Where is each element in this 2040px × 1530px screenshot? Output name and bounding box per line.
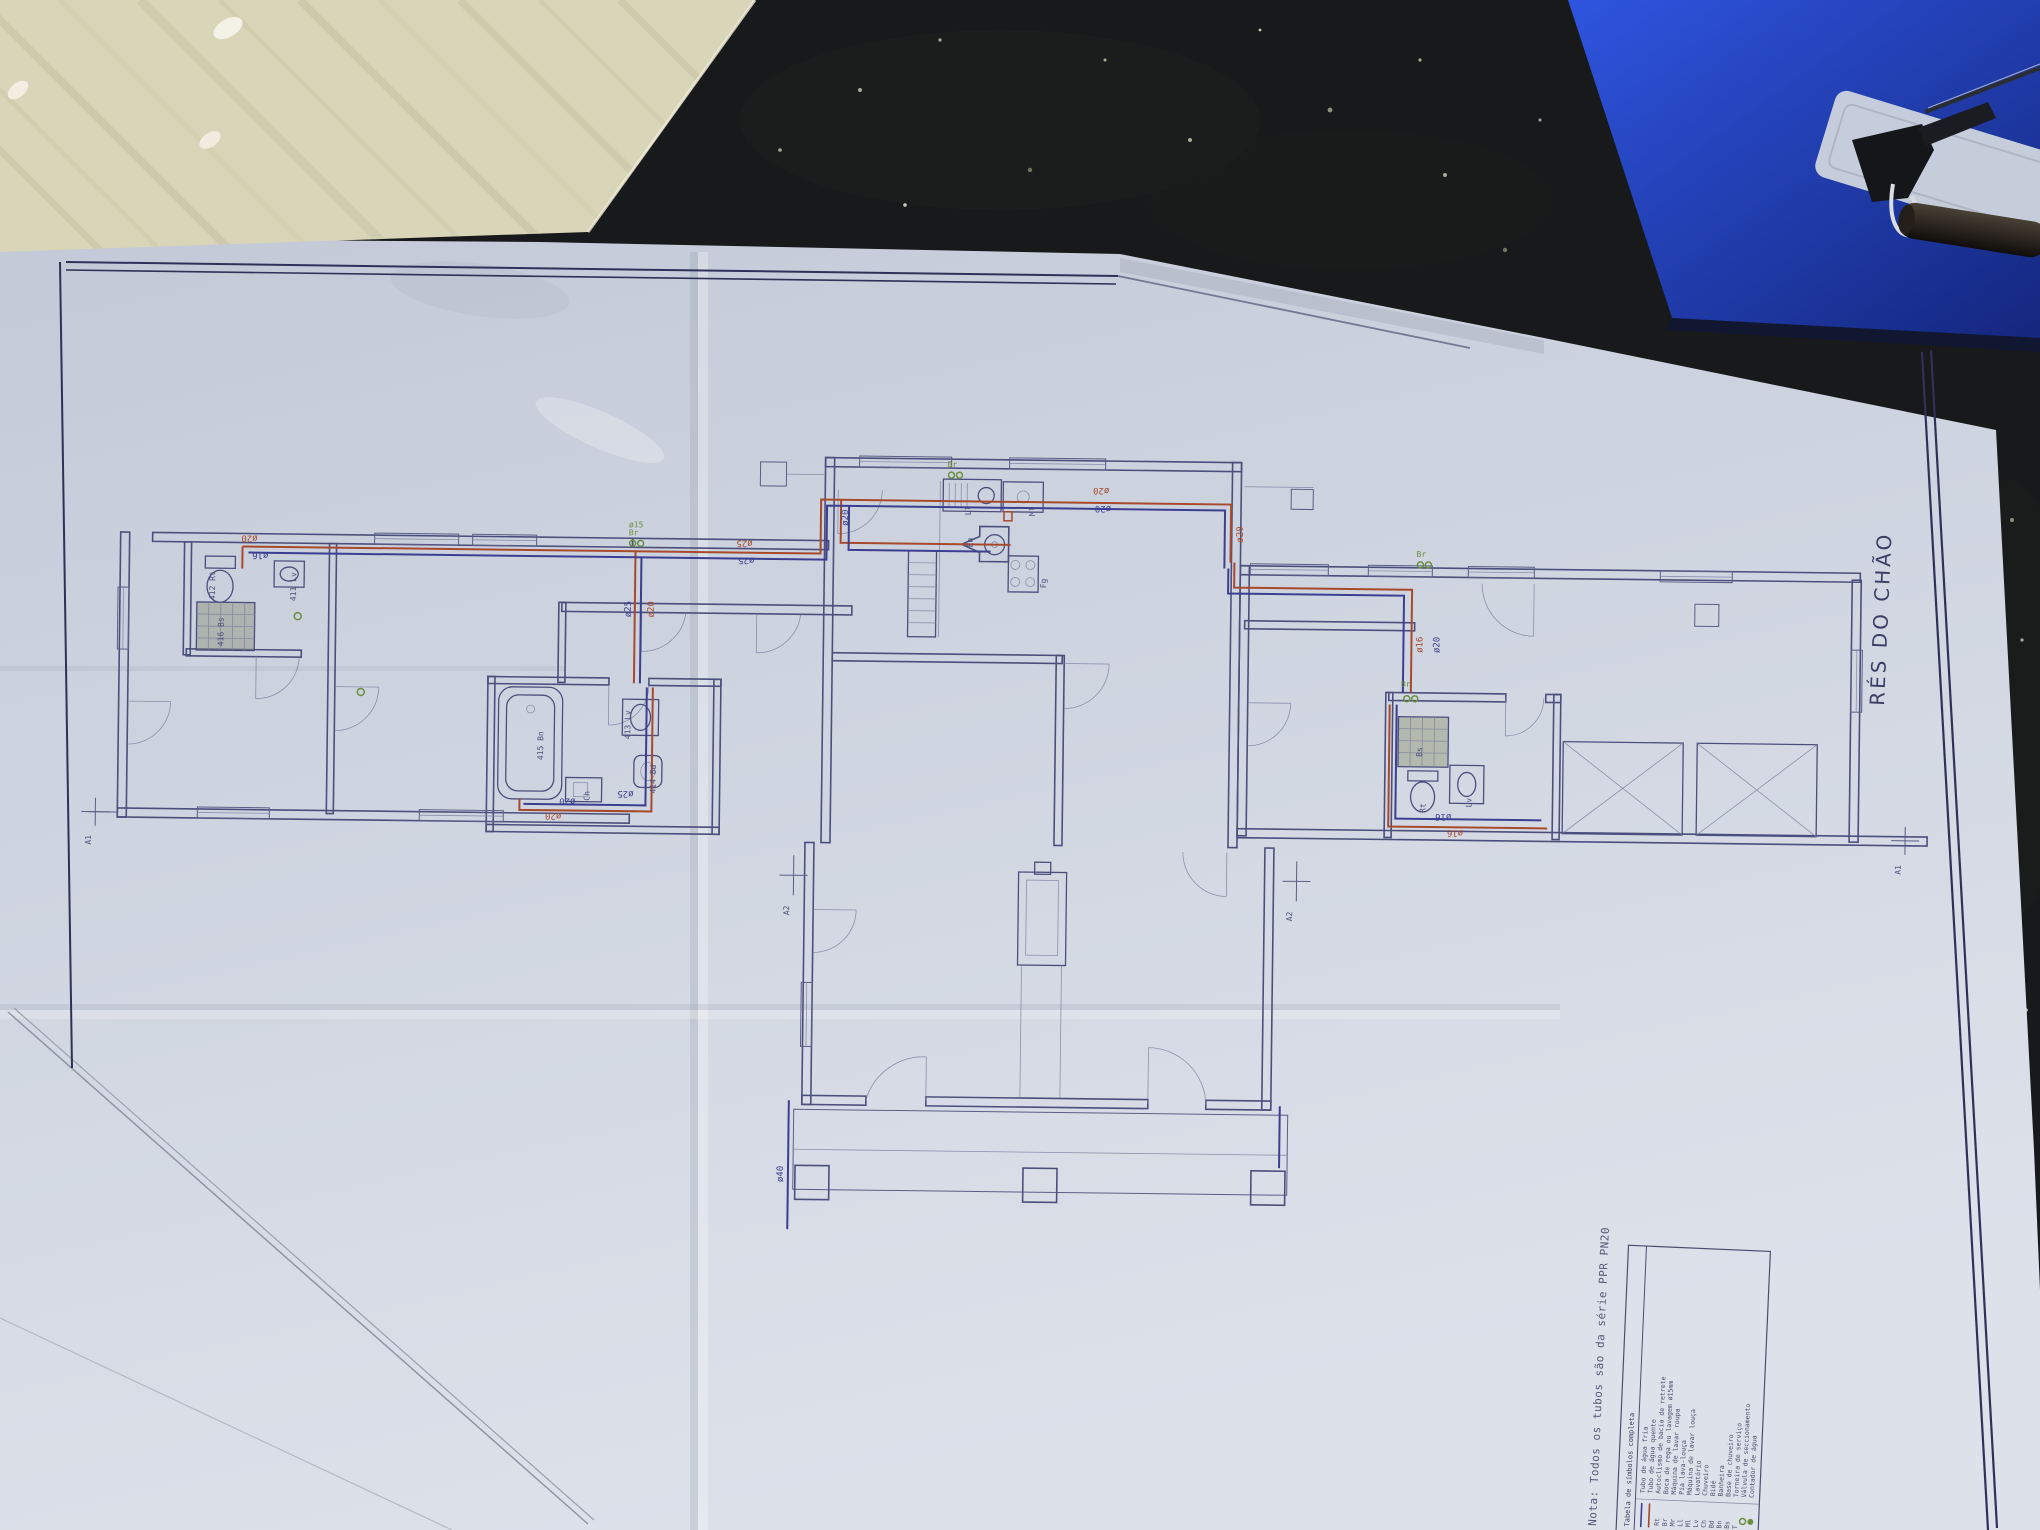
pipe-label-d25: ø25 [617, 788, 633, 798]
pipe-label-d16: ø16 [1435, 811, 1451, 821]
fixture-label-shower: 416 Bs [216, 617, 225, 646]
pipe-label-d20: ø20 [1432, 637, 1442, 653]
fixture-label-cabinet: Ch [582, 791, 591, 801]
fixture-label-toilet: Rt [1418, 803, 1427, 813]
pipe-label-d20: ø20 [241, 532, 257, 542]
pipe-label-d16: ø16 [252, 550, 268, 560]
fixture-label-sink: Lv [1464, 798, 1473, 808]
legend-symbol-hot-line [1649, 1503, 1650, 1527]
section-label: A2 [782, 905, 791, 915]
pipe-label-d20: ø20 [1095, 503, 1111, 513]
shower-icon [196, 602, 255, 651]
fixture-label-sink: 413 Lv [623, 710, 632, 739]
pipe-label-d20: ø20 [1093, 485, 1109, 495]
blueprint-photo: ø16 ø20 ø25 ø25 ø25 ø20 ø20 ø20 ø25 ø20 … [0, 0, 2040, 1530]
pipe-label-d20: ø20 [559, 795, 575, 805]
fixture-label-water-heater: Eq [966, 538, 975, 548]
pipe-label-d25: ø25 [624, 601, 634, 617]
fixture-label-stove: Fg [1039, 578, 1048, 588]
pipe-label-d25: ø25 [738, 555, 754, 565]
pipe-label-d20: ø20 [647, 601, 657, 617]
fixture-label-kitchen-sink: Ll [964, 505, 973, 515]
section-label: A1 [84, 835, 93, 845]
legend-abbr: T [1731, 1525, 1739, 1529]
paper-sheet: ø16 ø20 ø25 ø25 ø25 ø20 ø20 ø20 ø25 ø20 … [0, 238, 2040, 1530]
valve-label-br: Br [629, 528, 639, 537]
valve-label-br: Br [1401, 680, 1411, 689]
valve-label-br: Br [948, 460, 958, 469]
legend-symbol-cold-line [1641, 1503, 1642, 1527]
fixture-label-bidet: 414 Bd [649, 764, 658, 793]
fixture-label-dishwasher: Ml [1028, 506, 1037, 516]
pipe-label-d25: ø25 [736, 538, 752, 548]
fixture-label-toilet: 412 Rt [208, 571, 217, 600]
valve-label-d15: ø15 [629, 520, 644, 529]
pipe-label-d20: ø20 [1236, 526, 1246, 542]
fixture-label-bathtub: 415 Bn [536, 731, 545, 760]
pipe-label-d16: ø16 [1415, 637, 1425, 653]
photo-scene: ø16 ø20 ø25 ø25 ø25 ø20 ø20 ø20 ø25 ø20 … [0, 0, 2040, 1530]
pipe-label-d40: ø40 [776, 1166, 786, 1182]
shower-icon [1398, 717, 1449, 768]
fixture-label-sink: 411 Lv [289, 572, 298, 601]
pipe-label-d20: ø20 [545, 810, 561, 820]
section-label: A2 [1285, 911, 1294, 921]
section-label: A1 [1894, 865, 1903, 875]
paper-surface [0, 238, 2040, 1530]
pipe-label-d16: ø16 [1447, 827, 1463, 837]
pipe-label-d20: ø20 [841, 510, 851, 526]
valve-label-br: Br [1416, 550, 1426, 559]
fixture-label-shower: Bs [1415, 747, 1424, 757]
